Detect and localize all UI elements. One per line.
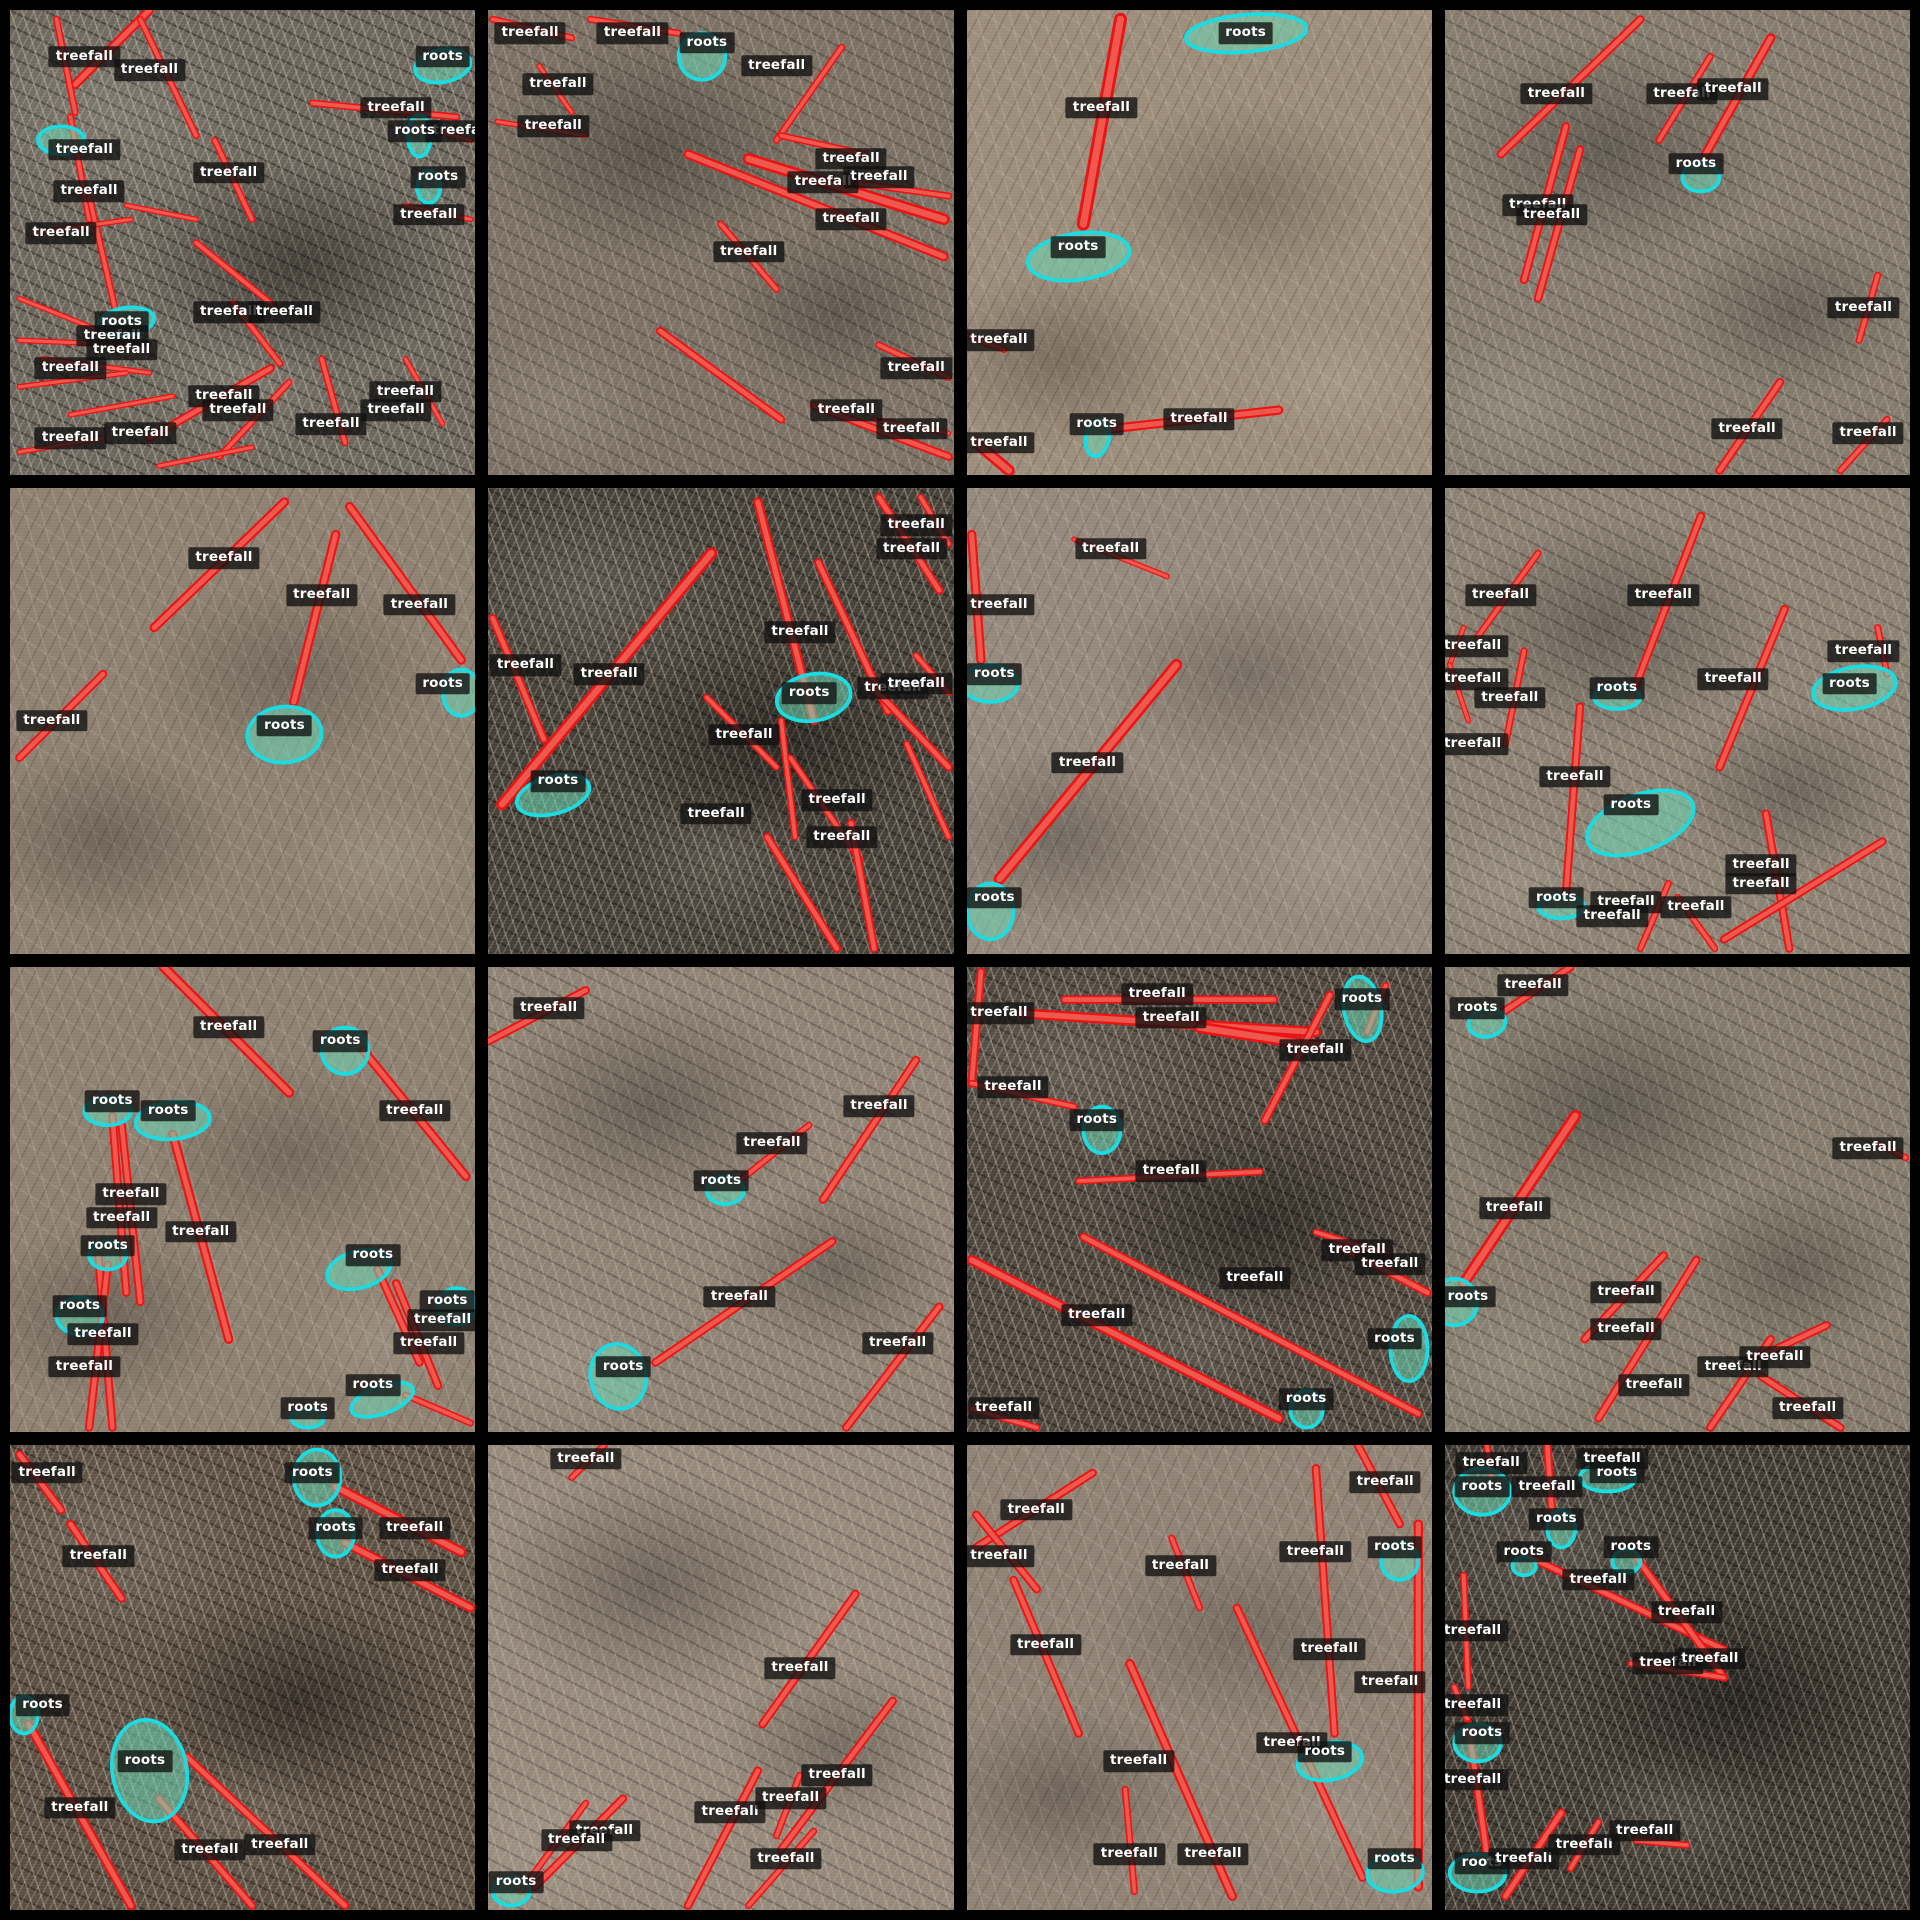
treefall-label: treefall [1591, 1319, 1662, 1341]
treefall-label: treefall [188, 547, 259, 569]
treefall-label: treefall [1465, 584, 1536, 606]
treefall-label: treefall [1516, 204, 1587, 226]
roots-label: roots [782, 682, 837, 704]
treefall-label: treefall [1698, 78, 1769, 100]
treefall-label: treefall [1577, 905, 1648, 927]
treefall-label: treefall [876, 538, 947, 560]
roots-label: roots [80, 1235, 135, 1257]
treefall-label: treefall [541, 1829, 612, 1851]
treefall-label: treefall [806, 826, 877, 848]
treefall-label: treefall [295, 413, 366, 435]
treefall-label: treefall [1354, 1253, 1425, 1275]
treefall-polygon-fill [196, 243, 270, 303]
treefall-label: treefall [407, 1309, 475, 1331]
roots-label: roots [1051, 236, 1106, 258]
treefall-label: treefall [379, 1518, 450, 1540]
treefall-label: treefall [35, 357, 106, 379]
treefall-label: treefall [44, 1797, 115, 1819]
treefall-label: treefall [16, 710, 87, 732]
roots-label: roots [308, 1518, 363, 1540]
treefall-label: treefall [361, 97, 432, 119]
treefall-label: treefall [816, 209, 887, 231]
treefall-label: treefall [1511, 1476, 1582, 1498]
tile-r1-c1: treefalltreefalltreefalltreefalltreefall… [488, 488, 953, 953]
treefall-label: treefall [967, 594, 1035, 616]
treefall-label: treefall [862, 1333, 933, 1355]
treefall-label: treefall [1591, 1281, 1662, 1303]
roots-label: roots [313, 1030, 368, 1052]
treefall-label: treefall [802, 1764, 873, 1786]
roots-region [1578, 778, 1702, 869]
roots-label: roots [15, 1695, 70, 1717]
treefall-label: treefall [843, 167, 914, 189]
treefall-label: treefall [379, 1100, 450, 1122]
treefall-label: treefall [1445, 636, 1509, 658]
treefall-label: treefall [1828, 297, 1899, 319]
roots-label: roots [1069, 1109, 1124, 1131]
treefall-label: treefall [968, 1398, 1039, 1420]
tile-mosaic-grid: treefalltreefallrootstreefalltreefallroo… [0, 0, 1920, 1920]
treefall-label: treefall [1609, 1820, 1680, 1842]
tile-r2-c0: treefallrootsrootsrootstreefalltreefallt… [10, 967, 475, 1432]
treefall-label: treefall [490, 654, 561, 676]
treefall-polygon-fill [294, 535, 336, 702]
treefall-label: treefall [764, 1657, 835, 1679]
treefall-label: treefall [1177, 1843, 1248, 1865]
treefall-label: treefall [193, 162, 264, 184]
treefall-label: treefall [1445, 733, 1509, 755]
roots-label: roots [1822, 673, 1877, 695]
treefall-polygon-fill [823, 1060, 916, 1200]
treefall-label: treefall [1354, 1671, 1425, 1693]
treefall-label: treefall [1219, 1267, 1290, 1289]
roots-label: roots [1367, 1536, 1422, 1558]
roots-label: roots [489, 1871, 544, 1893]
tile-r3-c0: treefallrootstreefallrootstreefalltreefa… [10, 1445, 475, 1910]
tile-r2-c1: treefalltreefalltreefallrootstreefallroo… [488, 967, 953, 1432]
treefall-label: treefall [1832, 1137, 1903, 1159]
treefall-label: treefall [967, 1546, 1035, 1568]
treefall-label: treefall [1280, 1541, 1351, 1563]
treefall-label: treefall [708, 724, 779, 746]
annotation-overlay [967, 488, 1432, 953]
treefall-label: treefall [1712, 418, 1783, 440]
treefall-polygon-fill [1315, 1468, 1334, 1733]
annotation-overlay [967, 967, 1432, 1432]
treefall-label: treefall [1445, 1620, 1509, 1642]
treefall-label: treefall [49, 1356, 120, 1378]
treefall-label: treefall [1294, 1639, 1365, 1661]
treefall-label: treefall [1445, 1769, 1509, 1791]
roots-label: roots [531, 771, 586, 793]
roots-label: roots [694, 1170, 749, 1192]
tile-r3-c1: treefalltreefalltreefalltreefalltreefall… [488, 1445, 953, 1910]
treefall-label: treefall [494, 22, 565, 44]
treefall-label: treefall [12, 1462, 83, 1484]
roots-label: roots [967, 887, 1022, 909]
roots-label: roots [1455, 1476, 1510, 1498]
treefall-label: treefall [1075, 538, 1146, 560]
treefall-label: treefall [286, 584, 357, 606]
treefall-label: treefall [1739, 1347, 1810, 1369]
treefall-label: treefall [1521, 83, 1592, 105]
roots-label: roots [85, 1091, 140, 1113]
treefall-polygon-fill [159, 447, 252, 466]
roots-label: roots [257, 715, 312, 737]
treefall-label: treefall [1772, 1398, 1843, 1420]
treefall-label: treefall [1122, 984, 1193, 1006]
treefall-label: treefall [1061, 1305, 1132, 1327]
annotation-overlay [967, 10, 1432, 475]
treefall-label: treefall [811, 399, 882, 421]
roots-label: roots [1069, 413, 1124, 435]
treefall-label: treefall [843, 1095, 914, 1117]
treefall-label: treefall [1066, 97, 1137, 119]
treefall-polygon-fill [1631, 516, 1701, 697]
treefall-label: treefall [193, 1016, 264, 1038]
treefall-label: treefall [881, 357, 952, 379]
treefall-label: treefall [1052, 752, 1123, 774]
treefall-label: treefall [513, 998, 584, 1020]
treefall-label: treefall [1651, 1601, 1722, 1623]
treefall-label: treefall [1563, 1569, 1634, 1591]
treefall-label: treefall [967, 330, 1035, 352]
treefall-label: treefall [802, 789, 873, 811]
tile-r2-c3: treefallrootstreefalltreefallrootstreefa… [1445, 967, 1910, 1432]
treefall-polygon-fill [126, 205, 196, 219]
treefall-label: treefall [1103, 1750, 1174, 1772]
tile-r0-c0: treefalltreefallrootstreefalltreefallroo… [10, 10, 475, 475]
treefall-label: treefall [1136, 1160, 1207, 1182]
treefall-label: treefall [1832, 423, 1903, 445]
annotation-overlay [1445, 488, 1910, 953]
roots-label: roots [285, 1462, 340, 1484]
roots-label: roots [1603, 794, 1658, 816]
treefall-label: treefall [977, 1077, 1048, 1099]
tile-r2-c2: treefalltreefalltreefallrootstreefalltre… [967, 967, 1432, 1432]
treefall-label: treefall [26, 223, 97, 245]
treefall-label: treefall [597, 22, 668, 44]
treefall-polygon-fill [846, 1306, 939, 1427]
treefall-polygon-fill [89, 196, 117, 317]
roots-label: roots [411, 167, 466, 189]
treefall-polygon-fill [688, 1770, 758, 1905]
treefall-label: treefall [881, 515, 952, 537]
treefall-label: treefall [967, 1002, 1035, 1024]
treefall-polygon-fill [1083, 19, 1120, 224]
treefall-label: treefall [681, 803, 752, 825]
treefall-label: treefall [114, 60, 185, 82]
treefall-label: treefall [1010, 1634, 1081, 1656]
roots-label: roots [1590, 1462, 1645, 1484]
treefall-label: treefall [764, 622, 835, 644]
treefall-label: treefall [1498, 974, 1569, 996]
roots-label: roots [967, 664, 1022, 686]
roots-label: roots [1297, 1741, 1352, 1763]
treefall-label: treefall [1001, 1499, 1072, 1521]
roots-label: roots [52, 1295, 107, 1317]
treefall-label: treefall [1828, 640, 1899, 662]
roots-label: roots [141, 1100, 196, 1122]
treefall-label: treefall [393, 1333, 464, 1355]
treefall-label: treefall [1136, 1007, 1207, 1029]
treefall-label: treefall [713, 241, 784, 263]
roots-label: roots [1367, 1328, 1422, 1350]
treefall-label: treefall [741, 55, 812, 77]
treefall-label: treefall [35, 427, 106, 449]
treefall-label: treefall [1145, 1555, 1216, 1577]
treefall-label: treefall [374, 1560, 445, 1582]
treefall-label: treefall [165, 1221, 236, 1243]
roots-label: roots [1450, 998, 1505, 1020]
treefall-polygon-fill [405, 1395, 470, 1423]
roots-label: roots [387, 120, 442, 142]
roots-label: roots [1445, 1286, 1496, 1308]
annotation-overlay [488, 967, 953, 1432]
treefall-label: treefall [361, 399, 432, 421]
treefall-label: treefall [750, 1848, 821, 1870]
treefall-label: treefall [881, 673, 952, 695]
treefall-label: treefall [736, 1133, 807, 1155]
tile-r3-c2: treefalltreefalltreefalltreefalltreefall… [967, 1445, 1432, 1910]
treefall-label: treefall [1456, 1453, 1527, 1475]
treefall-label: treefall [1725, 873, 1796, 895]
treefall-label: treefall [1539, 766, 1610, 788]
treefall-label: treefall [518, 116, 589, 138]
treefall-label: treefall [1474, 687, 1545, 709]
treefall-label: treefall [1163, 409, 1234, 431]
tile-r1-c2: treefalltreefallrootstreefallroots [967, 488, 1432, 953]
roots-label: roots [94, 311, 149, 333]
treefall-label: treefall [105, 423, 176, 445]
treefall-label: treefall [1350, 1471, 1421, 1493]
roots-label: roots [346, 1374, 401, 1396]
tile-r0-c3: treefalltreefalltreefallrootstreefalltre… [1445, 10, 1910, 475]
treefall-label: treefall [574, 664, 645, 686]
roots-label: roots [1529, 887, 1584, 909]
tile-r1-c0: treefalltreefalltreefallrootstreefallroo… [10, 488, 475, 953]
roots-label: roots [415, 46, 470, 68]
roots-label: roots [1335, 988, 1390, 1010]
treefall-label: treefall [49, 46, 120, 68]
treefall-label: treefall [704, 1286, 775, 1308]
roots-label: roots [1367, 1848, 1422, 1870]
treefall-label: treefall [1660, 896, 1731, 918]
treefall-polygon-fill [781, 721, 795, 837]
tile-r0-c1: treefalltreefallrootstreefalltreefalltre… [488, 10, 953, 475]
treefall-label: treefall [86, 1207, 157, 1229]
treefall-polygon-fill [70, 396, 172, 415]
roots-label: roots [346, 1244, 401, 1266]
treefall-label: treefall [755, 1788, 826, 1810]
treefall-label: treefall [63, 1546, 134, 1568]
treefall-label: treefall [1445, 1695, 1509, 1717]
roots-label: roots [118, 1750, 173, 1772]
roots-label: roots [1603, 1536, 1658, 1558]
treefall-label: treefall [244, 1834, 315, 1856]
treefall-label: treefall [1280, 1039, 1351, 1061]
tile-r1-c3: treefalltreefalltreefalltreefalltreefall… [1445, 488, 1910, 953]
treefall-label: treefall [1674, 1648, 1745, 1670]
roots-label: roots [1279, 1388, 1334, 1410]
tile-r3-c3: treefalltreefallrootsrootstreefallrootsr… [1445, 1445, 1910, 1910]
treefall-polygon-fill [767, 837, 837, 949]
roots-label: roots [1218, 22, 1273, 44]
treefall-label: treefall [67, 1323, 138, 1345]
treefall-polygon-fill [1013, 1580, 1078, 1734]
roots-label: roots [415, 673, 470, 695]
treefall-label: treefall [384, 594, 455, 616]
treefall-label: treefall [967, 432, 1035, 454]
treefall-label: treefall [174, 1839, 245, 1861]
treefall-label: treefall [53, 181, 124, 203]
roots-label: roots [1496, 1541, 1551, 1563]
roots-label: roots [596, 1356, 651, 1378]
treefall-label: treefall [249, 302, 320, 324]
tile-r0-c2: rootstreefallrootstreefalltreefallrootst… [967, 10, 1432, 475]
roots-label: roots [1455, 1722, 1510, 1744]
treefall-label: treefall [1618, 1374, 1689, 1396]
annotation-overlay [1445, 10, 1910, 475]
treefall-label: treefall [1698, 668, 1769, 690]
treefall-label: treefall [1628, 584, 1699, 606]
treefall-polygon-fill [350, 507, 462, 661]
treefall-label: treefall [876, 418, 947, 440]
roots-label: roots [1669, 153, 1724, 175]
roots-label: roots [1529, 1508, 1584, 1530]
treefall-label: treefall [49, 139, 120, 161]
treefall-label: treefall [522, 74, 593, 96]
roots-label: roots [280, 1398, 335, 1420]
treefall-label: treefall [1479, 1198, 1550, 1220]
roots-label: roots [680, 32, 735, 54]
roots-label: roots [1590, 678, 1645, 700]
treefall-polygon-fill [187, 1756, 345, 1905]
treefall-polygon-fill [493, 619, 544, 740]
treefall-label: treefall [393, 204, 464, 226]
treefall-polygon-fill [660, 331, 781, 419]
treefall-label: treefall [202, 399, 273, 421]
treefall-polygon-fill [1566, 707, 1580, 893]
treefall-label: treefall [95, 1184, 166, 1206]
treefall-label: treefall [550, 1448, 621, 1470]
treefall-label: treefall [1094, 1843, 1165, 1865]
